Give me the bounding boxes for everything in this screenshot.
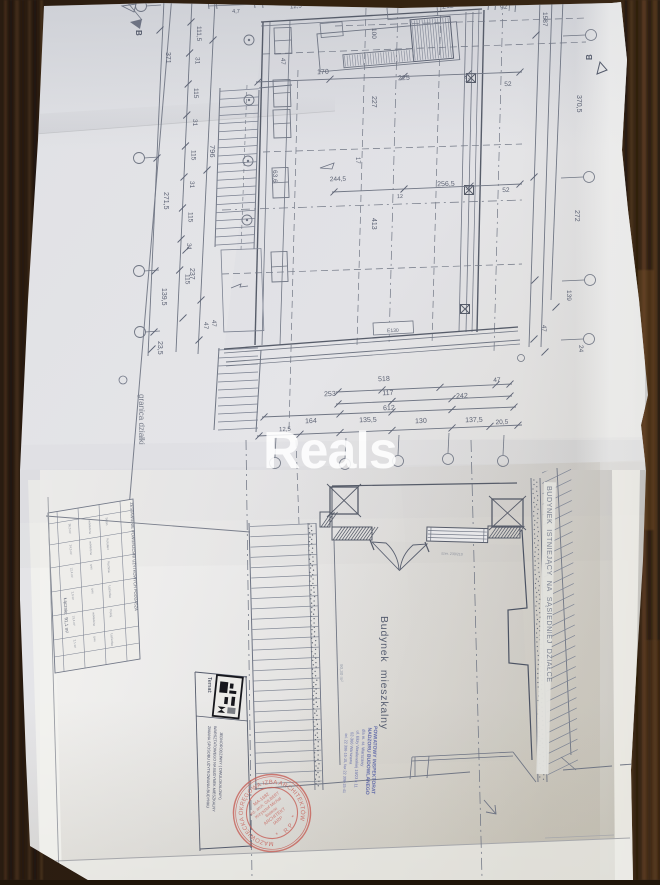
svg-text:31: 31 [191, 119, 198, 127]
svg-text:796: 796 [208, 145, 217, 158]
svg-text:612: 612 [383, 405, 395, 412]
svg-text:47: 47 [540, 325, 546, 332]
svg-text:Salon: Salon [105, 517, 109, 526]
svg-text:4,7: 4,7 [232, 9, 240, 15]
svg-text:253: 253 [324, 391, 336, 398]
svg-text:17: 17 [354, 157, 360, 164]
svg-text:115: 115 [187, 212, 194, 223]
svg-text:24: 24 [577, 345, 584, 353]
svg-text:Temat:: Temat: [206, 677, 212, 694]
svg-text:24,3 m²: 24,3 m² [69, 544, 73, 555]
svg-text:wykładzina: wykładzina [92, 612, 97, 627]
svg-text:BUDYNEK ISTNIEJĄCY NA SĄSIE: BUDYNEK ISTNIEJĄCY NA SĄSIEDNIEJ DZIAŁCE [545, 486, 554, 683]
svg-text:B: B [134, 30, 143, 36]
svg-text:63,6: 63,6 [271, 170, 278, 183]
svg-text:115: 115 [192, 88, 199, 99]
svg-text:36,0 m²: 36,0 m² [68, 523, 72, 534]
svg-text:47: 47 [279, 58, 285, 65]
svg-text:47: 47 [202, 322, 209, 330]
svg-text:granica działki: granica działki [137, 394, 146, 445]
svg-text:31: 31 [194, 57, 201, 65]
svg-text:52: 52 [502, 187, 510, 194]
svg-text:130: 130 [415, 418, 427, 425]
svg-text:31: 31 [188, 181, 195, 189]
svg-text:Budynek mieszkalny: Budynek mieszkalny [378, 616, 390, 730]
svg-text:137,5: 137,5 [465, 417, 483, 425]
svg-text:271,5: 271,5 [162, 192, 169, 210]
svg-text:Łazienka: Łazienka [110, 633, 115, 646]
svg-text:90,30 m²: 90,30 m² [339, 664, 344, 682]
svg-text:13,4 m²: 13,4 m² [72, 615, 76, 626]
svg-text:237: 237 [188, 268, 195, 280]
svg-text:370,5: 370,5 [575, 95, 582, 113]
svg-text:12,4 m²: 12,4 m² [70, 567, 74, 578]
svg-text:Reals: Reals [263, 422, 397, 480]
svg-text:12: 12 [397, 194, 403, 200]
svg-text:52: 52 [504, 81, 512, 88]
svg-text:115: 115 [189, 150, 196, 161]
svg-text:23,5: 23,5 [156, 341, 163, 355]
svg-text:272: 272 [573, 210, 580, 222]
svg-text:371: 371 [164, 52, 171, 64]
svg-text:225: 225 [398, 75, 410, 82]
svg-text:Kuchnia: Kuchnia [107, 561, 111, 573]
svg-text:256,5: 256,5 [437, 181, 455, 189]
svg-text:518: 518 [378, 376, 390, 383]
svg-text:413: 413 [370, 218, 377, 230]
svg-text:B: B [585, 54, 594, 60]
svg-text:Pokój: Pokój [109, 609, 113, 618]
svg-text:2,9 m²: 2,9 m² [71, 591, 75, 600]
svg-text:139: 139 [565, 290, 572, 301]
svg-text:244,5: 244,5 [330, 176, 347, 184]
svg-text:Korytarz: Korytarz [106, 538, 110, 551]
svg-text:12: 12 [465, 78, 473, 84]
svg-text:100: 100 [370, 28, 377, 39]
svg-text:139,5: 139,5 [160, 288, 167, 306]
svg-text:E130: E130 [387, 328, 399, 335]
svg-text:20,5: 20,5 [496, 419, 509, 426]
svg-text:2,1 m²: 2,1 m² [73, 639, 77, 648]
svg-text:47: 47 [493, 377, 501, 384]
svg-text:242: 242 [456, 393, 468, 400]
svg-text:47: 47 [210, 320, 216, 327]
svg-text:wykładzina: wykładzina [88, 520, 93, 535]
svg-text:111,5: 111,5 [195, 26, 202, 42]
svg-text:170: 170 [317, 69, 329, 76]
svg-text:117: 117 [382, 390, 394, 397]
svg-text:wykładzina: wykładzina [89, 541, 94, 556]
svg-text:227: 227 [370, 96, 377, 108]
svg-text:Łazienka: Łazienka [108, 585, 113, 598]
